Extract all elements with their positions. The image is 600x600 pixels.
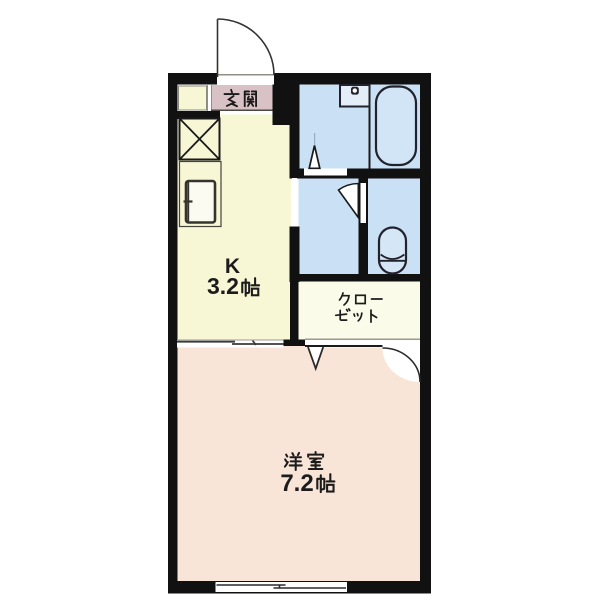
svg-text:3.2: 3.2: [207, 273, 239, 299]
svg-text:7.2: 7.2: [280, 470, 313, 497]
